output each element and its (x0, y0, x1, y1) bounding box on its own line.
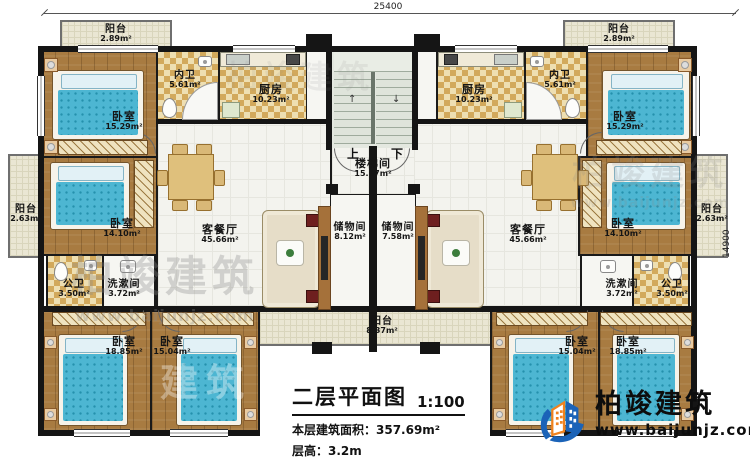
window (74, 429, 130, 437)
nightstand (44, 336, 57, 349)
stair-arrow-up-icon: ↑ (348, 94, 356, 105)
rug (276, 240, 304, 266)
brand-logo-icon (537, 390, 591, 444)
brand-website: www.baijunjz.com (595, 421, 750, 439)
dining-chair (157, 170, 168, 186)
title-block: 二层平面图 1:100 本层建筑面积：357.69m² 层高：3.2m (292, 381, 465, 459)
dining-chair (196, 200, 212, 211)
wall-stair-left (326, 46, 332, 150)
sink (198, 56, 212, 67)
room-label-wash-r: 洗漱间3.72m² (606, 279, 639, 299)
wardrobe (496, 312, 588, 326)
floor-height-label: 层高：3.2m (292, 442, 465, 459)
page-title: 二层平面图 (292, 381, 407, 411)
nightstand (244, 336, 257, 349)
dining-chair (172, 144, 188, 155)
column (326, 184, 338, 194)
title-row: 二层平面图 1:100 (292, 381, 465, 416)
dining-chair (214, 170, 225, 186)
dimension-right-value: 14900 (722, 229, 732, 258)
dining-table (168, 154, 214, 200)
balcony-post (312, 342, 332, 354)
room-label-bedroom-bl1: 卧室18.85m² (105, 336, 142, 357)
nightstand (681, 336, 694, 349)
room-pantry-nook-right (416, 50, 438, 122)
stair-flight (376, 72, 412, 144)
dimension-top-value: 25400 (370, 2, 407, 12)
stair-landing (334, 52, 412, 72)
stove (444, 54, 458, 65)
sink (120, 260, 136, 273)
room-label-bedroom-bl2: 卧室15.04m² (153, 336, 190, 357)
kitchen-sink (494, 54, 518, 65)
room-label-balcony-b: 阳台8.37m² (366, 316, 398, 336)
room-label-bedroom-tr: 卧室15.29m² (606, 111, 643, 132)
room-label-bedroom-tl: 卧室15.29m² (105, 111, 142, 132)
nightstand (44, 140, 58, 154)
fridge (504, 102, 522, 118)
dimension-tick (732, 9, 739, 16)
dining-chair (560, 200, 576, 211)
room-label-living-l: 客餐厅45.66m² (201, 224, 238, 245)
room-storage-right (375, 194, 416, 308)
window (588, 45, 668, 53)
floor-plan: 25400 14900 (0, 0, 750, 460)
tv (321, 236, 328, 280)
stair-rail (371, 72, 375, 144)
stair-arrow-down-icon: ↓ (392, 94, 400, 105)
room-label-balcony-tr: 阳台2.89m² (603, 24, 635, 44)
wall-stair-right (412, 46, 418, 150)
sink (600, 260, 616, 273)
rug (442, 240, 470, 266)
floor-area-label: 本层建筑面积：357.69m² (292, 421, 465, 438)
tv (418, 236, 425, 280)
room-label-kitchen-r: 厨房10.23m² (455, 84, 492, 105)
wardrobe (52, 312, 146, 326)
nightstand (44, 408, 57, 421)
nightstand (244, 408, 257, 421)
side-cabinet (426, 290, 440, 303)
column (408, 184, 420, 194)
stove (286, 54, 300, 65)
room-label-living-r: 客餐厅45.66m² (509, 224, 546, 245)
dining-chair (536, 144, 552, 155)
window (170, 429, 228, 437)
sink (640, 260, 653, 271)
window (692, 76, 700, 136)
nightstand (493, 408, 506, 421)
brand-name: 柏竣建筑 (595, 390, 750, 420)
room-label-balcony-ml: 阳台2.63m² (10, 204, 42, 224)
dining-table (532, 154, 578, 200)
room-label-innerbath-l: 内卫5.61m² (169, 70, 201, 90)
room-label-pubbath-r: 公卫3.50m² (656, 279, 688, 299)
side-cabinet (426, 214, 440, 227)
room-label-bedroom-mr: 卧室14.10m² (604, 218, 641, 239)
dining-chair (196, 144, 212, 155)
window (78, 45, 158, 53)
kitchen-sink (226, 54, 250, 65)
room-label-storage-r: 储物间7.58m² (382, 222, 415, 242)
wardrobe (596, 140, 682, 155)
wardrobe (162, 312, 254, 326)
room-label-pubbath-l: 公卫3.50m² (58, 279, 90, 299)
brand-text: 柏竣建筑 www.baijunjz.com (595, 390, 750, 439)
sink (530, 56, 544, 67)
nightstand (678, 58, 692, 72)
nightstand (493, 336, 506, 349)
column (414, 34, 440, 48)
brand-block: 柏竣建筑 www.baijunjz.com (537, 390, 750, 444)
sink (84, 260, 97, 271)
nightstand (44, 58, 58, 72)
stair-down-label: 下 (391, 145, 403, 162)
dining-chair (172, 200, 188, 211)
dining-chair (560, 144, 576, 155)
wardrobe (600, 312, 692, 326)
window (37, 76, 45, 136)
room-label-stairwell: 楼梯间15.67m² (354, 158, 391, 179)
dining-chair (578, 170, 589, 186)
dining-chair (521, 170, 532, 186)
fridge (222, 102, 240, 118)
room-label-innerbath-r: 内卫5.61m² (544, 70, 576, 90)
room-label-storage-l: 储物间8.12m² (334, 222, 367, 242)
room-pantry-nook-left (306, 50, 328, 122)
room-storage-left (330, 194, 371, 308)
balcony-post (420, 342, 440, 354)
dining-chair (536, 200, 552, 211)
dimension-line-top (44, 13, 736, 14)
room-label-bedroom-ml: 卧室14.10m² (103, 218, 140, 239)
toilet (162, 98, 177, 118)
wall (416, 119, 588, 124)
room-label-bedroom-br1: 卧室15.04m² (558, 336, 595, 357)
stair-flight (334, 72, 371, 144)
column (306, 34, 332, 48)
room-label-balcony-mr: 阳台2.63m² (696, 204, 728, 224)
room-label-bedroom-br2: 卧室18.85m² (609, 336, 646, 357)
room-label-wash-l: 洗漱间3.72m² (108, 279, 141, 299)
toilet (565, 98, 580, 118)
scale-label: 1:100 (417, 393, 465, 411)
room-label-balcony-tl: 阳台2.89m² (100, 24, 132, 44)
wardrobe (58, 140, 148, 155)
room-label-kitchen-l: 厨房10.23m² (252, 84, 289, 105)
